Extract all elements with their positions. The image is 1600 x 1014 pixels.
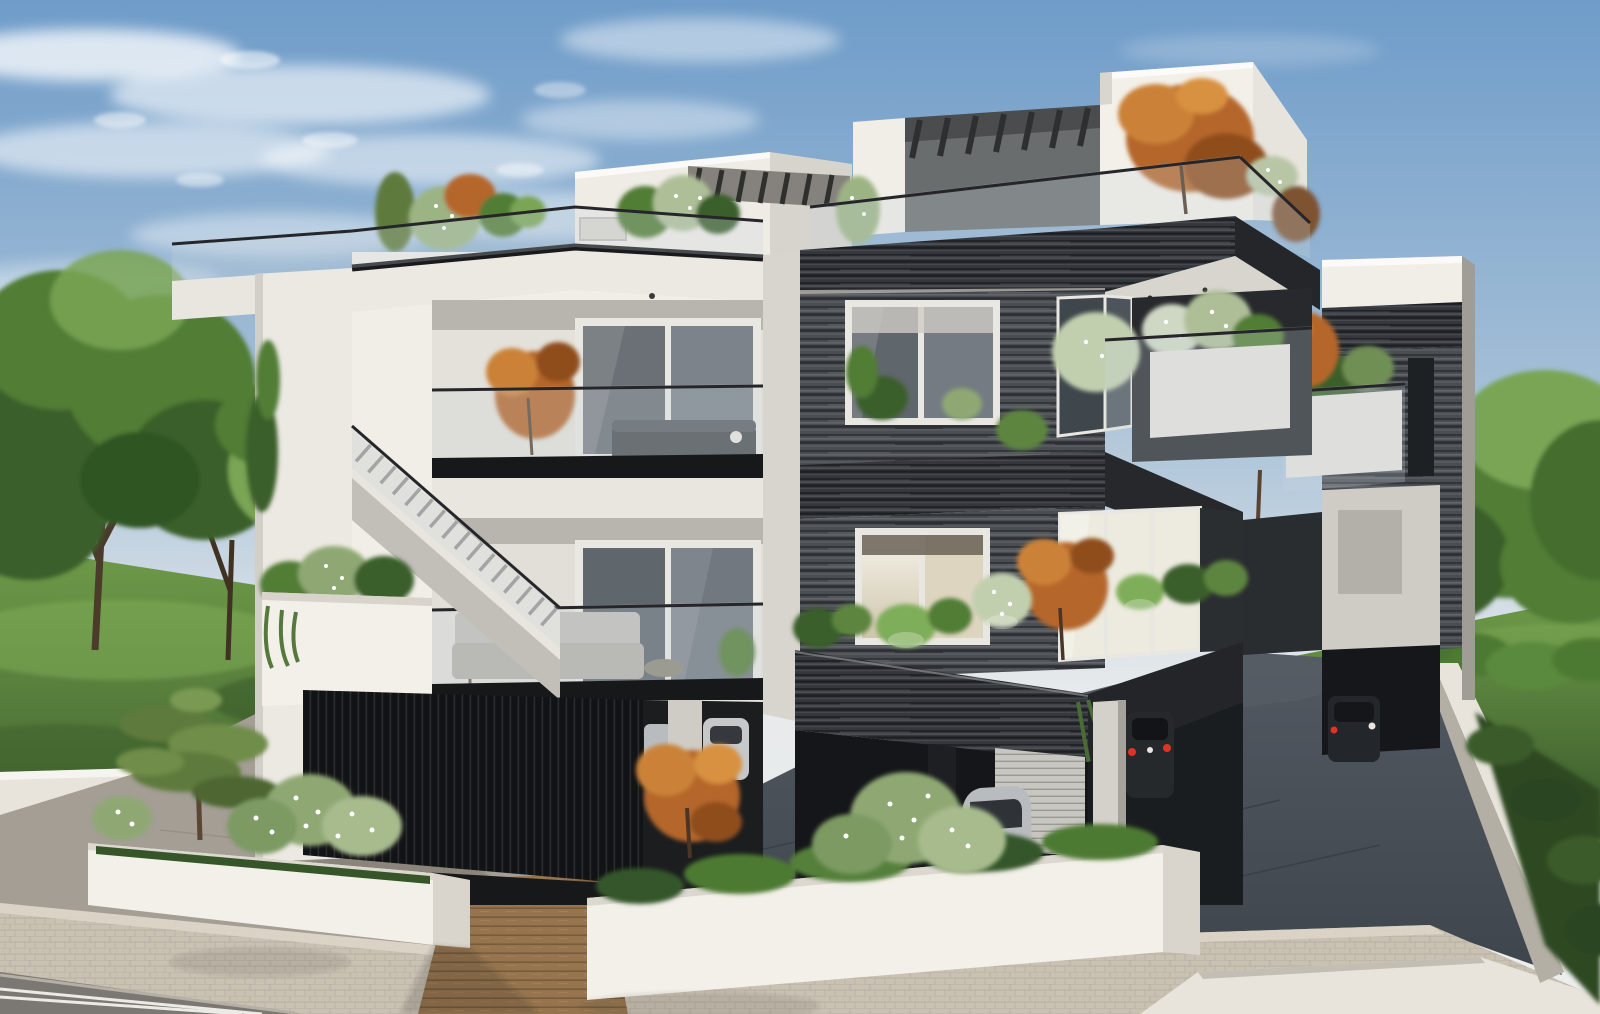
annex-parked-car [1328,696,1380,762]
floor2 [800,288,1312,472]
annex-window [1408,358,1434,476]
architectural-render [0,0,1600,1014]
balcony2-glass-railing [432,384,763,466]
floor2-balcony-glass [1105,326,1312,465]
annex-lower-window [1338,510,1402,594]
stair-landing-parapet [172,275,255,320]
garage-slat-wall [303,690,643,885]
dark-car [1126,712,1174,798]
render-viewport [0,0,1600,1014]
balcony-floor2 [432,300,763,466]
